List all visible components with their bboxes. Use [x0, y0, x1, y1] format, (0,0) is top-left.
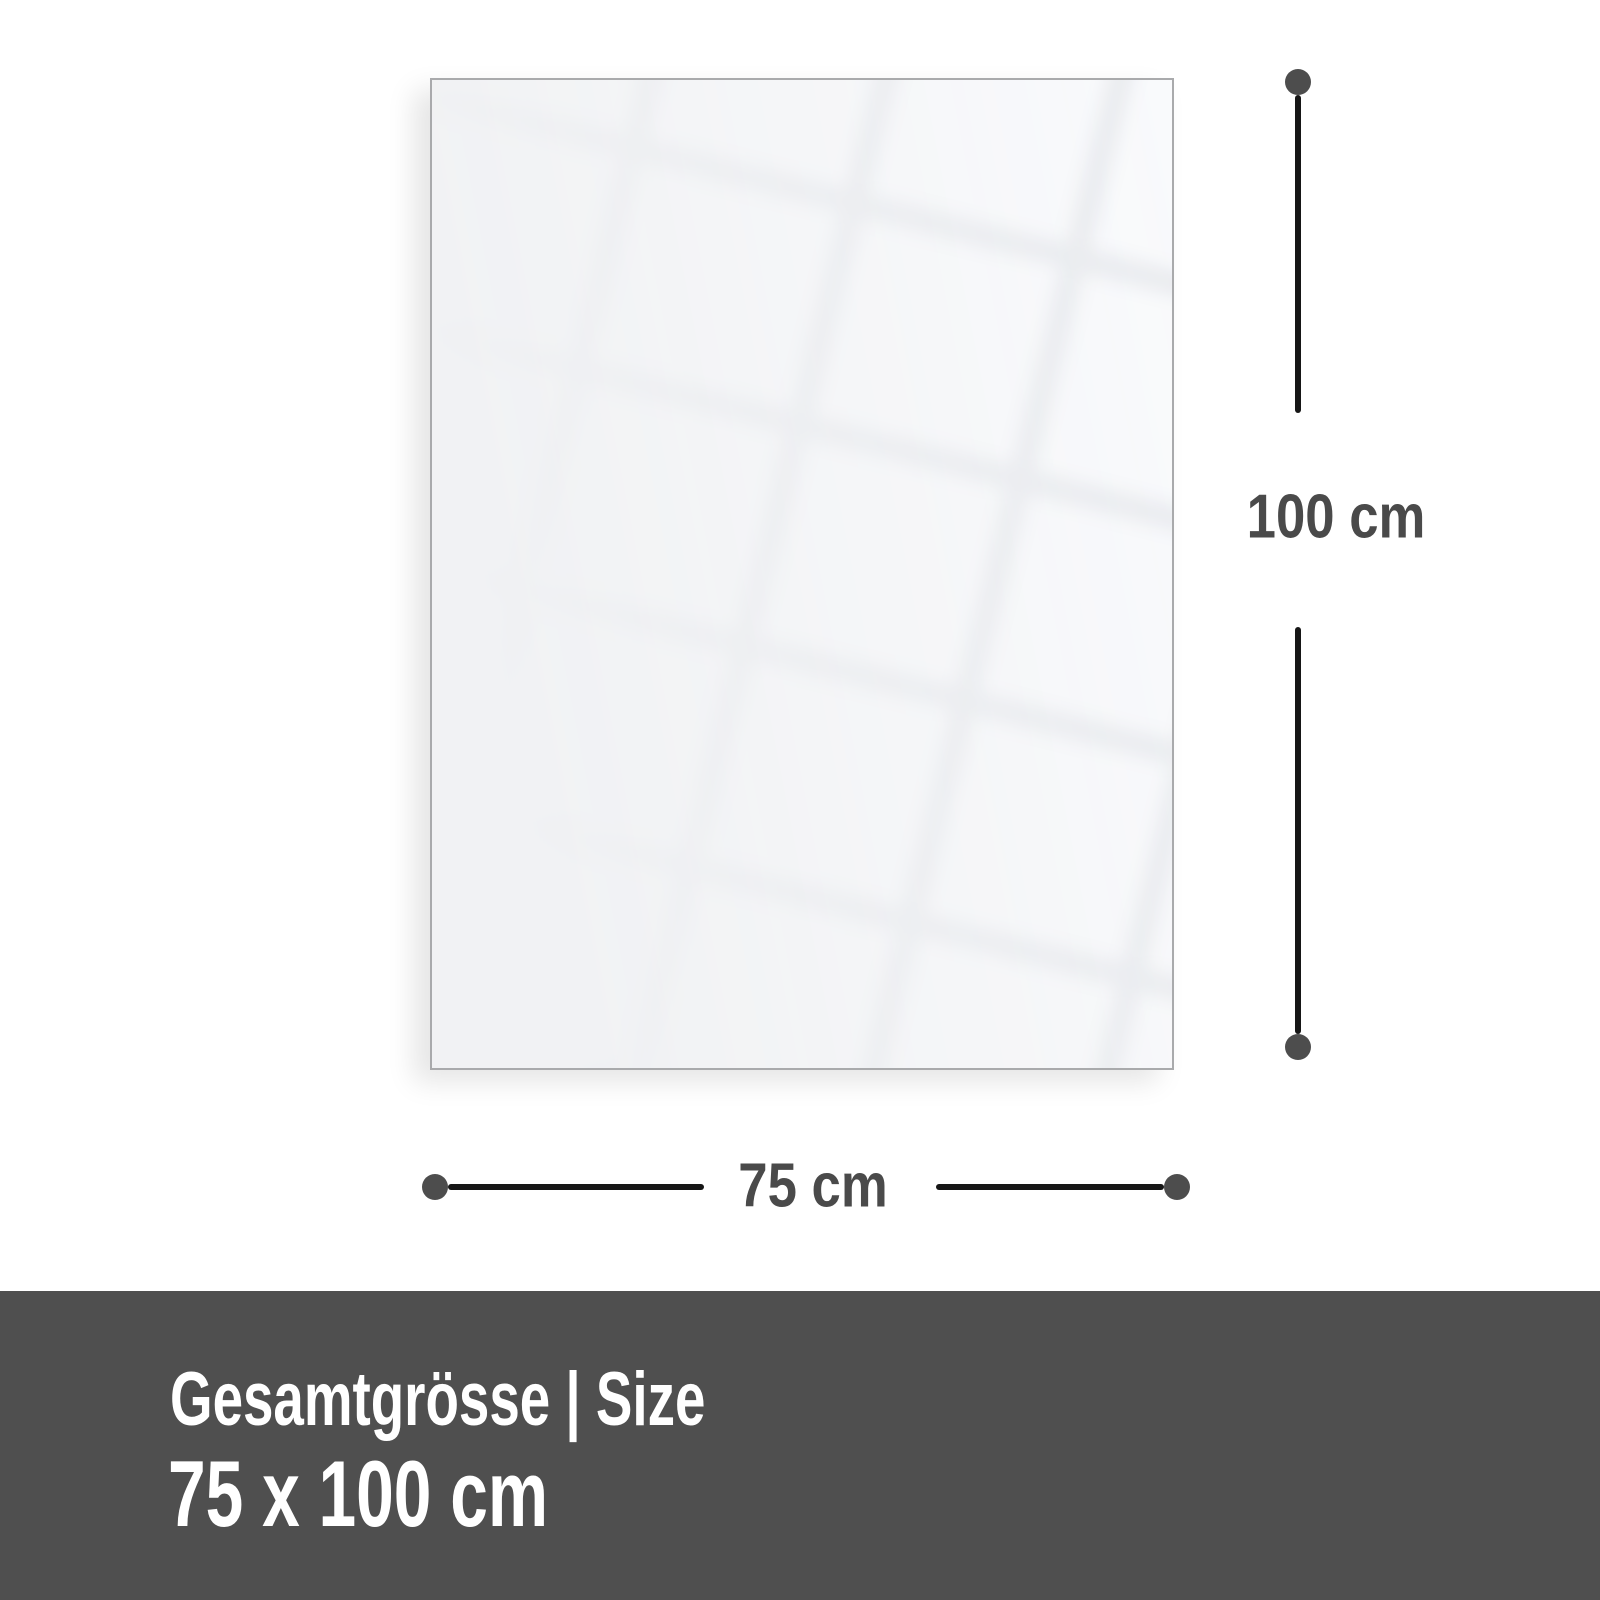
height-dimension-label: 100 cm	[1247, 482, 1426, 553]
footer-size-value: 75 x 100 cm	[168, 1440, 548, 1548]
width-dimension-left-line	[448, 1184, 704, 1190]
width-dimension-label: 75 cm	[738, 1151, 887, 1222]
width-dimension-left-dot	[422, 1174, 448, 1200]
footer-title: Gesamtgrösse | Size	[170, 1356, 705, 1443]
width-dimension-right-dot	[1164, 1174, 1190, 1200]
height-dimension-top-dot	[1285, 69, 1311, 95]
height-dimension-lower-line	[1295, 627, 1301, 1034]
height-dimension-bottom-dot	[1285, 1034, 1311, 1060]
glass-panel	[430, 78, 1174, 1070]
window-reflection	[430, 78, 1174, 1070]
height-dimension-upper-line	[1295, 95, 1301, 413]
product-size-diagram: 100 cm 75 cm Gesamtgrösse | Size 75 x 10…	[0, 0, 1600, 1600]
width-dimension-right-line	[936, 1184, 1164, 1190]
